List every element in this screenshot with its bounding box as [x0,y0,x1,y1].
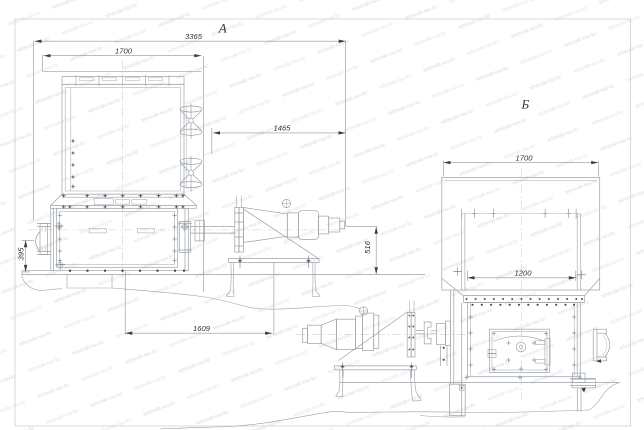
svg-text:1465: 1465 [274,124,292,133]
svg-text:395: 395 [16,247,25,260]
svg-text:Б: Б [520,97,529,112]
svg-text:3365: 3365 [185,32,203,41]
svg-text:А: А [218,21,227,36]
svg-text:516: 516 [363,240,372,253]
svg-text:1700: 1700 [115,47,133,56]
svg-text:1700: 1700 [516,153,534,162]
svg-text:1200: 1200 [515,269,533,278]
svg-text:1609: 1609 [193,324,211,333]
